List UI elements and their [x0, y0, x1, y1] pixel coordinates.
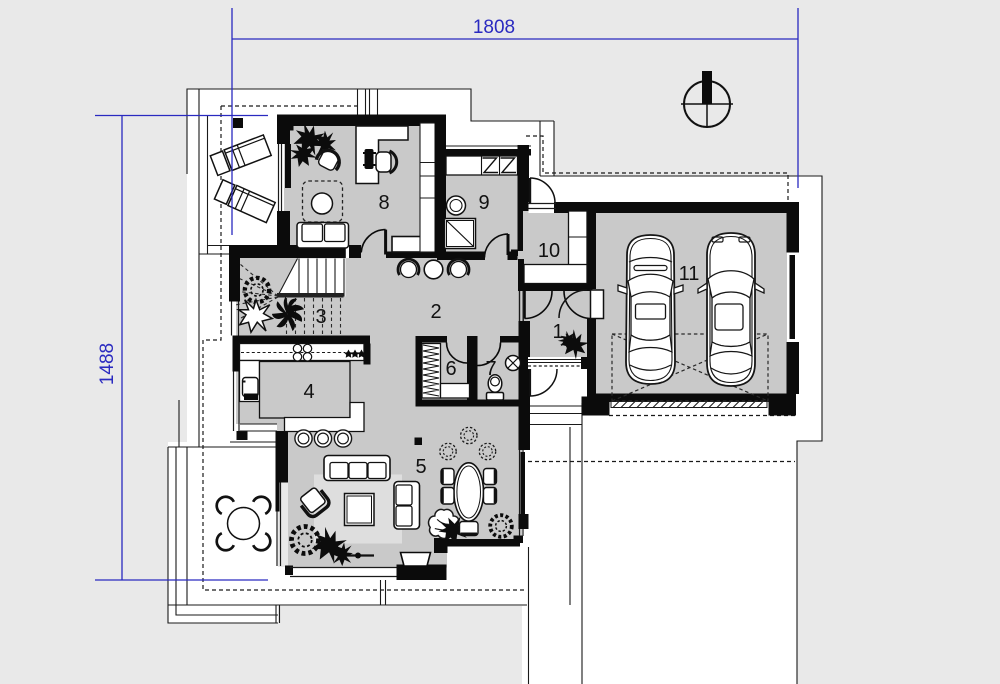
- svg-text:7: 7: [485, 358, 496, 380]
- svg-text:1488: 1488: [97, 343, 118, 385]
- svg-text:2: 2: [430, 301, 441, 323]
- svg-text:4: 4: [303, 381, 314, 403]
- svg-text:1808: 1808: [473, 17, 515, 38]
- svg-text:1: 1: [552, 321, 563, 343]
- svg-text:10: 10: [538, 240, 560, 262]
- svg-text:5: 5: [415, 456, 426, 478]
- svg-text:3: 3: [315, 306, 326, 328]
- svg-text:9: 9: [478, 192, 489, 214]
- svg-text:11: 11: [679, 263, 700, 285]
- svg-text:8: 8: [378, 192, 389, 214]
- svg-text:6: 6: [445, 358, 456, 380]
